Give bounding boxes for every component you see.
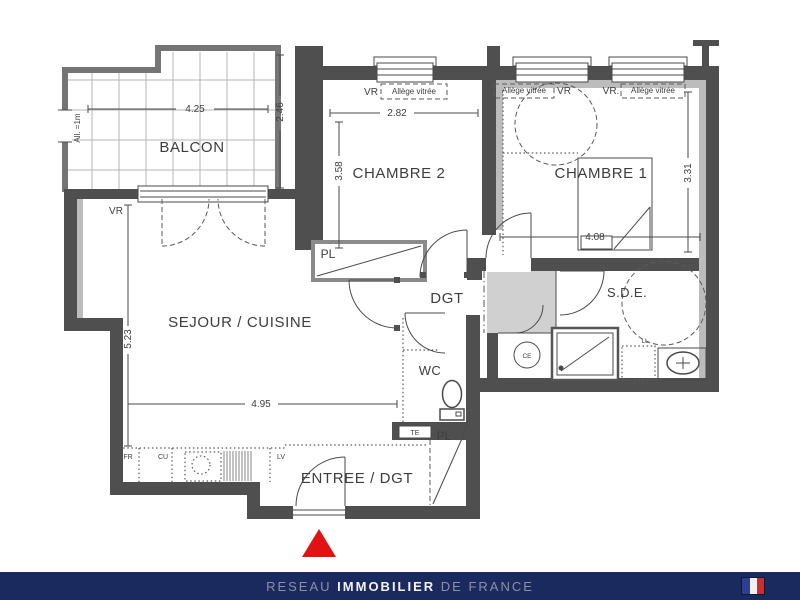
doorway-entry (293, 505, 345, 520)
window-chambre1-right (612, 63, 684, 82)
wall-balcony-chambre2 (295, 46, 323, 250)
door-balcony-left (162, 199, 209, 246)
room-label-chambre2: CHAMBRE 2 (353, 165, 446, 182)
label-allege-chambre2: Allège vitrée (392, 87, 437, 96)
room-label-dgt: DGT (430, 290, 463, 307)
dim-balcon-width: 4.25 (185, 104, 205, 115)
toilet-icon (440, 381, 464, 421)
entrance-arrow-icon (302, 529, 336, 557)
label-vr-chambre1-left: VR (557, 86, 571, 97)
room-label-sde: S.D.E. (607, 285, 647, 300)
label-te: TE (411, 430, 420, 437)
technical-duct (487, 271, 556, 333)
room-label-entree: ENTREE / DGT (301, 470, 413, 487)
turning-circle-sde (622, 261, 706, 345)
footer-brand-prefix: RESEAU (266, 579, 331, 594)
label-cu: CU (158, 454, 168, 461)
footer-brand-main: IMMOBILIER (337, 579, 435, 594)
floorplan-page: BALCON CHAMBRE 2 CHAMBRE 1 SEJOUR / CUIS… (0, 0, 800, 600)
dim-balcon-depth: 2.46 (275, 102, 286, 122)
label-lv: LV (277, 454, 285, 461)
roof-vent-icon (693, 40, 719, 46)
label-allege-chambre1-right: Allège vitrée (631, 86, 676, 95)
turning-circle-chambre1 (515, 83, 597, 165)
dim-balcon-sill: All. =1m (73, 113, 82, 142)
door-sejour-dgt (349, 280, 397, 328)
window-balcony-door (138, 186, 268, 202)
dim-chambre1-depth: 3.31 (683, 163, 694, 183)
sink-icon (185, 452, 221, 481)
label-vr-chambre2: VR (364, 87, 378, 98)
dim-chambre2-width: 2.82 (387, 108, 407, 119)
balcony-area (58, 45, 281, 192)
room-label-wc: WC (419, 363, 441, 378)
dim-chambre1-width: 4.08 (585, 232, 605, 243)
wall-kitchen-bottom (110, 482, 260, 495)
doorway-chambre1 (486, 257, 531, 272)
wall-left-upper (64, 189, 77, 331)
facade-pier (487, 46, 500, 66)
door-sde (560, 271, 604, 315)
label-vr-balcony: VR (109, 206, 123, 217)
footer-brand-suffix: DE FRANCE (441, 579, 534, 594)
label-ll: LL (641, 338, 649, 345)
floorplan-canvas: BALCON CHAMBRE 2 CHAMBRE 1 SEJOUR / CUIS… (0, 0, 800, 572)
wall-right (706, 66, 719, 392)
dim-sejour-depth: 5.23 (123, 329, 134, 349)
balcony-sill-notch (58, 110, 72, 142)
room-label-chambre1: CHAMBRE 1 (555, 165, 648, 182)
wall-balcony-bottom-left (64, 189, 140, 199)
label-pl-chambre2: PL (321, 247, 336, 261)
shower-icon (552, 328, 618, 380)
label-fr: FR (123, 454, 132, 461)
kitchen-counter (115, 448, 285, 482)
drainer-hatch (224, 451, 251, 481)
wall-ce-closet (487, 333, 498, 392)
washbasin-icon (658, 348, 706, 380)
label-allege-chambre1-left: Allège vitrée (502, 86, 547, 95)
footer-brand: RESEAU IMMOBILIER DE FRANCE (266, 579, 534, 594)
france-flag-icon (742, 578, 764, 594)
label-ce: CE (522, 353, 532, 360)
room-label-balcon: BALCON (159, 139, 224, 156)
window-chambre1-left (516, 63, 588, 82)
wall-left-lower (110, 318, 123, 495)
door-wc (405, 313, 445, 353)
label-vr-chambre1-right: VR. (603, 86, 620, 97)
label-pl-entree: PL (437, 429, 452, 443)
footer-bar: RESEAU IMMOBILIER DE FRANCE (0, 572, 800, 600)
dim-sejour-width: 4.95 (251, 399, 271, 410)
door-balcony-right (218, 199, 265, 246)
wall-entree-right (466, 315, 480, 519)
room-label-sejour: SEJOUR / CUISINE (168, 314, 312, 331)
dim-chambre2-depth: 3.58 (334, 161, 345, 181)
window-chambre2 (377, 63, 433, 82)
washing-machine-icon (622, 346, 655, 380)
door-chambre2 (420, 230, 467, 277)
